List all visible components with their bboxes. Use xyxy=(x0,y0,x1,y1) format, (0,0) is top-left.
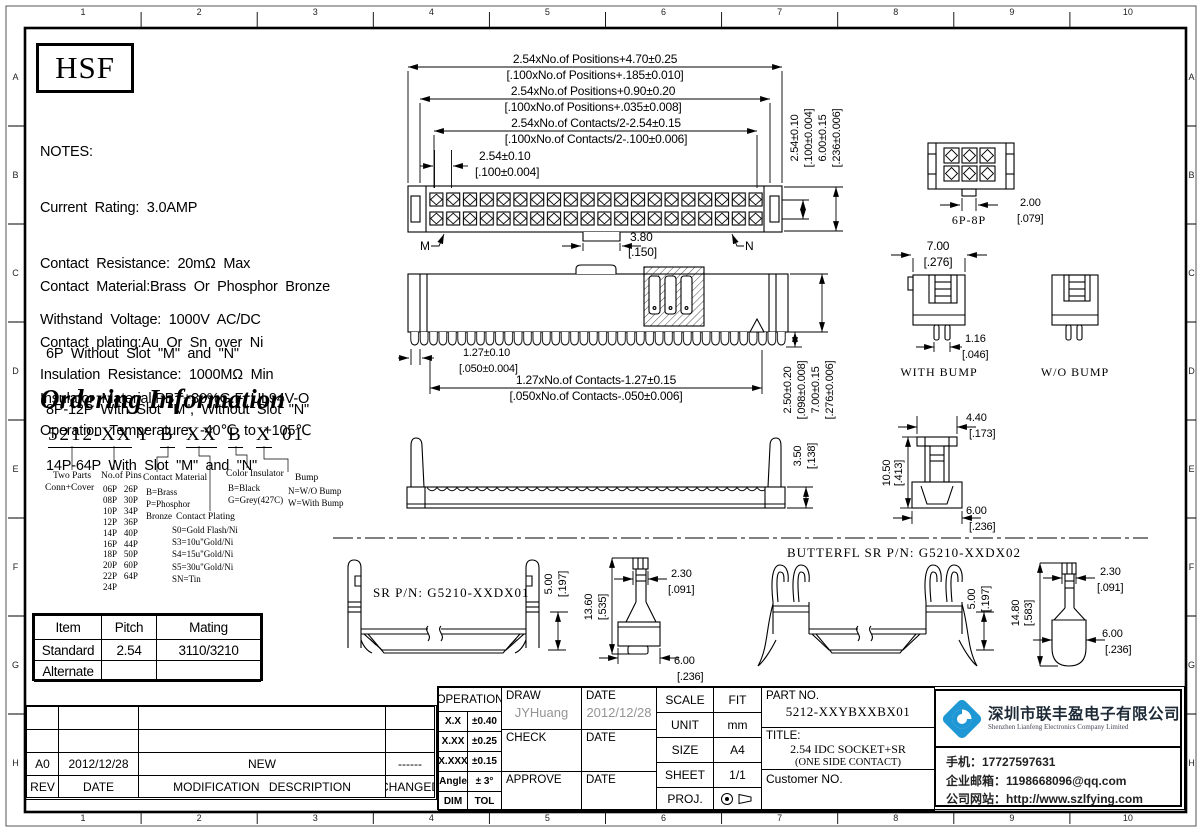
note-line: 6P Without Slot "M" and "N" xyxy=(46,345,309,364)
mating-table: Item Pitch Mating Standard 2.54 3110/321… xyxy=(32,613,263,681)
ruler-number: 3 xyxy=(257,7,373,17)
size-label: SIZE xyxy=(656,737,714,763)
ruler-number: 2 xyxy=(141,7,257,17)
slot-n-label: N xyxy=(745,239,753,253)
unit-label: UNIT xyxy=(656,712,714,738)
svg-text:2.54±0.10: 2.54±0.10 xyxy=(479,149,531,163)
rev-empty xyxy=(26,729,59,753)
tol-dim: DIM xyxy=(438,791,468,811)
title-block: OPERATION X.X ±0.40 X.XX ±0.25 X.XXX ±0.… xyxy=(437,686,1185,810)
code-bump: X xyxy=(256,424,272,448)
ruler-letter: C xyxy=(6,224,25,322)
ruler-number: 9 xyxy=(954,7,1070,17)
company-email: 企业邮箱：1198668096@qq.com xyxy=(946,772,1170,791)
mating-header: Mating xyxy=(156,615,261,640)
ruler-letter: G xyxy=(1186,616,1197,714)
tol-val: ±0.40 xyxy=(467,711,502,732)
ruler-letter: B xyxy=(1186,126,1197,224)
check-cell: CHECK xyxy=(501,729,582,772)
ruler-number: 6 xyxy=(606,7,722,17)
svg-text:5.00: 5.00 xyxy=(966,589,978,610)
option: S4=15u"Gold/Ni xyxy=(172,548,238,560)
part-no-cell: PART NO. 5212-XXYBXXBX01 xyxy=(761,687,935,728)
pins-item: 24P xyxy=(103,582,138,593)
svg-text:[.236]: [.236] xyxy=(677,671,703,683)
wo-bump-view xyxy=(1052,275,1098,340)
rev-empty xyxy=(58,729,139,753)
code-prefix: 5212- xyxy=(48,424,102,448)
dim-text: 1.16 xyxy=(965,333,986,345)
connector-section-view xyxy=(408,265,788,347)
ruler-number: 9 xyxy=(954,813,1070,823)
company-website: 公司网站：http://www.szlfying.com xyxy=(946,790,1170,809)
dim-text: 1.27±0.10 xyxy=(463,347,510,359)
svg-text:2.54xNo.of Contacts/2-2.54±0.: 2.54xNo.of Contacts/2-2.54±0.15 xyxy=(511,116,681,130)
svg-text:[.150]: [.150] xyxy=(628,245,657,259)
option: S0=Gold Flash/Ni xyxy=(172,524,238,536)
pins-list: 06P 26P 08P 30P 10P 34P 12P 36P 14P 40P … xyxy=(103,484,138,593)
svg-text:[.100±0.004]: [.100±0.004] xyxy=(803,109,815,168)
rev-empty xyxy=(26,706,59,730)
contact-plating-options: S0=Gold Flash/Ni S3=10u"Gold/Ni S4=15u"G… xyxy=(172,524,238,585)
rev-empty xyxy=(385,706,435,730)
pins-item: 06P 26P xyxy=(103,484,138,495)
dim-text: [.236] xyxy=(969,521,995,533)
mating-cell: Standard xyxy=(34,639,102,661)
notes-title: NOTES: xyxy=(40,143,311,162)
pins-item: 16P 44P xyxy=(103,539,138,550)
view-6p-8p-label: 6P-8P xyxy=(952,213,986,227)
option: G=Grey(427C) xyxy=(228,494,283,506)
dim-text: 10.50 xyxy=(881,460,893,487)
ruler-letter: F xyxy=(6,518,25,616)
dim-text: [.138] xyxy=(806,443,818,469)
svg-text:[.100±0.004]: [.100±0.004] xyxy=(475,165,539,179)
pins-item: 20P 60P xyxy=(103,560,138,571)
hsf-logo-text: HSF xyxy=(55,50,115,86)
option: P=Phosphor xyxy=(146,498,190,510)
dim-text: [.050xNo.of Contacts-.050±0.006] xyxy=(510,389,683,403)
svg-text:[.583]: [.583] xyxy=(1023,600,1035,626)
ruler-number: 5 xyxy=(489,813,605,823)
dim-text: [.079] xyxy=(1017,213,1043,225)
company-name-en: Shenzhen Lianfeng Electronics Company Li… xyxy=(988,723,1180,731)
company-phone: 手机：17727597631 xyxy=(946,753,1170,772)
note-line: Contact Material:Brass Or Phosphor Bronz… xyxy=(40,278,330,297)
svg-text:[.197]: [.197] xyxy=(557,571,569,597)
ruler-letter: H xyxy=(1186,714,1197,812)
two-parts-desc: Conn+Cover xyxy=(45,483,94,493)
dim-text: 1.27xNo.of Contacts-1.27±0.15 xyxy=(516,373,677,387)
dim-text: 2.00 xyxy=(1020,197,1041,209)
contact-material-label: Contact Material xyxy=(143,473,207,483)
svg-text:14.80: 14.80 xyxy=(1010,600,1022,627)
dim-text: [.050±0.004] xyxy=(459,363,518,375)
ruler-number: 8 xyxy=(838,7,954,17)
svg-text:[.091]: [.091] xyxy=(668,584,694,596)
tol-dim: X.X xyxy=(438,711,468,732)
company-contact: 手机：17727597631 企业邮箱：1198668096@qq.com 公司… xyxy=(936,748,1180,814)
pins-item: 22P 64P xyxy=(103,571,138,582)
draw-name: JYHuang xyxy=(515,705,568,720)
dim-text: 6.00 xyxy=(966,505,987,517)
unit-value: mm xyxy=(713,712,762,738)
dim-text: [.046] xyxy=(962,349,988,361)
svg-text:[.535]: [.535] xyxy=(597,594,609,620)
hsf-logo: HSF xyxy=(36,43,134,93)
option: S3=10u"Gold/Ni xyxy=(172,536,238,548)
rev-empty xyxy=(138,706,386,730)
ordering-information-title: Ordering Information xyxy=(40,384,285,415)
ruler-letter: E xyxy=(6,420,25,518)
svg-text:2.50±0.20: 2.50±0.20 xyxy=(782,366,794,413)
rev-empty xyxy=(138,729,386,753)
rev-description: NEW xyxy=(138,752,386,776)
ruler-number: 8 xyxy=(838,813,954,823)
connector-top-view xyxy=(408,186,782,241)
customer-no-cell: Customer NO. xyxy=(761,769,935,811)
ruler-letter: B xyxy=(6,126,25,224)
dim-text: 7.00 xyxy=(927,239,950,253)
mating-header: Item xyxy=(34,615,102,640)
pins-item: 18P 50P xyxy=(103,549,138,560)
option: B=Brass xyxy=(146,486,190,498)
code-plating: XX xyxy=(186,424,217,448)
code-y: Y xyxy=(136,424,152,446)
revision-table: A0 2012/12/28 NEW ------ REV DATE MODIFI… xyxy=(25,705,437,800)
projection-symbol xyxy=(713,787,762,811)
slot-m-label: M xyxy=(420,239,430,253)
bump-options: N=W/O Bump W=With Bump xyxy=(288,486,343,509)
draw-label: DRAW xyxy=(506,690,541,702)
svg-text:2.30: 2.30 xyxy=(1100,566,1121,578)
dim-text: 2.50±0.20 [.098±0.008] 7.00±0.15 [.276±0… xyxy=(782,361,836,420)
ruler-number: 7 xyxy=(722,7,838,17)
code-suffix: 01 xyxy=(282,424,305,446)
company-header: 深圳市联丰盈电子有限公司 Shenzhen Lianfeng Electroni… xyxy=(936,691,1180,748)
draw-date-cell: DATE 2012/12/28 xyxy=(581,687,657,730)
option: SN=Tin xyxy=(172,573,238,585)
rev-empty xyxy=(385,729,435,753)
contact-plating-label: Contact Plating xyxy=(176,512,235,522)
option: N=W/O Bump xyxy=(288,486,343,498)
size-value: A4 xyxy=(713,737,762,763)
pins-item: 08P 30P xyxy=(103,495,138,506)
part-no-label: PART NO. xyxy=(766,690,819,702)
tol-dim: X.XX xyxy=(438,731,468,752)
tol-val: ± 3° xyxy=(467,771,502,792)
company-logo-icon xyxy=(940,697,984,741)
mating-cell: 2.54 xyxy=(101,639,157,661)
pins-label: No.of Pins xyxy=(101,471,142,481)
svg-text:2.54xNo.of Positions+4.70±0.2: 2.54xNo.of Positions+4.70±0.25 xyxy=(513,52,678,66)
mating-cell: Alternate xyxy=(34,660,102,682)
svg-text:[.236±0.006]: [.236±0.006] xyxy=(831,109,843,168)
svg-text:13.60: 13.60 xyxy=(583,594,595,621)
dim-text: 4.40 xyxy=(966,412,987,424)
option: W=With Bump xyxy=(288,498,343,510)
two-parts-label: Two Parts xyxy=(53,471,91,481)
svg-text:6.00±0.15: 6.00±0.15 xyxy=(817,114,829,161)
ruler-number: 4 xyxy=(373,813,489,823)
ruler-letter: A xyxy=(1186,28,1197,126)
ruler-letter: E xyxy=(1186,420,1197,518)
ruler-letter: A xyxy=(6,28,25,126)
rev-header: REV xyxy=(26,775,59,798)
sr1-part-number: SR P/N: G5210-XXDX01 xyxy=(373,585,530,600)
pins-item: 10P 34P xyxy=(103,506,138,517)
draw-cell: DRAW JYHuang xyxy=(501,687,582,730)
drawing-subtitle: (ONE SIDE CONTACT) xyxy=(795,757,901,768)
color-insulator-label: Color Insulator xyxy=(226,469,284,479)
part-number: 5212-XXYBXXBX01 xyxy=(786,704,911,720)
dim-text: [.413] xyxy=(893,460,905,486)
rev-header: MODIFICATION DESCRIPTION xyxy=(138,775,386,798)
title-label: TITLE: xyxy=(766,730,801,742)
dim-text: [.173] xyxy=(969,428,995,440)
svg-text:[.236]: [.236] xyxy=(1105,644,1131,656)
sheet-value: 1/1 xyxy=(713,762,762,788)
option: S5=30u"Gold/Ni xyxy=(172,561,238,573)
ruler-number: 4 xyxy=(373,7,489,17)
approve-cell: APPROVE xyxy=(501,771,582,811)
svg-text:[.098±0.008]: [.098±0.008] xyxy=(796,361,808,420)
note-line: Current Rating: 3.0AMP xyxy=(40,199,311,218)
svg-text:[.100xNo.of Contacts/2-.100±0: [.100xNo.of Contacts/2-.100±0.006] xyxy=(505,132,688,146)
svg-text:6.00: 6.00 xyxy=(674,655,695,667)
ruler-number: 5 xyxy=(489,7,605,17)
tol-val: ±0.25 xyxy=(467,731,502,752)
rev-date: 2012/12/28 xyxy=(58,752,139,776)
sr-single-contact xyxy=(618,558,660,654)
ruler-letter: H xyxy=(6,714,25,812)
ruler-number: 10 xyxy=(1070,813,1186,823)
svg-text:[.100xNo.of Positions+.035±0.: [.100xNo.of Positions+.035±0.008] xyxy=(504,100,681,114)
ruler-letter: D xyxy=(6,322,25,420)
draw-date: 2012/12/28 xyxy=(586,705,651,720)
ruler-number: 1 xyxy=(25,813,141,823)
company-block: 深圳市联丰盈电子有限公司 Shenzhen Lianfeng Electroni… xyxy=(934,689,1182,807)
code-material: B xyxy=(160,424,175,448)
mating-cell xyxy=(101,660,157,682)
ruler-letter: C xyxy=(1186,224,1197,322)
svg-text:2.54xNo.of Positions+0.90±0.2: 2.54xNo.of Positions+0.90±0.20 xyxy=(511,84,676,98)
mating-cell xyxy=(156,660,261,682)
ruler-number: 3 xyxy=(257,813,373,823)
rev-header: CHANGED xyxy=(385,775,435,798)
butterfly-sr-view xyxy=(758,565,977,666)
color-insulator-options: B=Black G=Grey(427C) xyxy=(228,482,283,506)
operation-header: OPERATION xyxy=(438,687,502,712)
bump-label: Bump xyxy=(295,473,318,483)
svg-text:[.197]: [.197] xyxy=(980,586,992,612)
cover-bottom-view xyxy=(407,438,813,508)
pins-item: 14P 40P xyxy=(103,528,138,539)
ruler-letter: F xyxy=(1186,518,1197,616)
svg-text:3.80: 3.80 xyxy=(630,230,653,244)
scale-label: SCALE xyxy=(656,687,714,713)
proj-label: PROJ. xyxy=(656,787,714,811)
dim-text: [.276] xyxy=(924,255,953,269)
rev-header: DATE xyxy=(58,775,139,798)
tol-dim: X.XXX xyxy=(438,751,468,772)
sr2-part-number: BUTTERFL SR P/N: G5210-XXDX02 xyxy=(787,545,1021,560)
svg-text:[.091]: [.091] xyxy=(1097,582,1123,594)
mating-header: Pitch xyxy=(101,615,157,640)
tol-dim: Angle xyxy=(438,771,468,792)
svg-text:2.54±0.10: 2.54±0.10 xyxy=(789,114,801,161)
svg-text:6.00: 6.00 xyxy=(1102,628,1123,640)
title-cell: TITLE: 2.54 IDC SOCKET+SR (ONE SIDE CONT… xyxy=(761,727,935,770)
svg-text:5.00: 5.00 xyxy=(543,574,555,595)
ruler-number: 7 xyxy=(722,813,838,823)
pins-item: 12P 36P xyxy=(103,517,138,528)
code-color: B xyxy=(228,424,243,448)
svg-text:7.00±0.15: 7.00±0.15 xyxy=(810,366,822,413)
ruler-letter: D xyxy=(1186,322,1197,420)
with-bump-label: WITH BUMP xyxy=(900,365,977,379)
svg-text:[.100xNo.of Positions+.185±0.: [.100xNo.of Positions+.185±0.010] xyxy=(506,68,683,82)
sr-strip-view xyxy=(348,560,539,653)
scale-value: FIT xyxy=(713,687,762,713)
svg-text:[.276±0.006]: [.276±0.006] xyxy=(824,361,836,420)
check-date-cell: DATE xyxy=(581,729,657,772)
date-label: DATE xyxy=(586,690,616,702)
svg-text:2.30: 2.30 xyxy=(671,568,692,580)
ruler-letter: G xyxy=(6,616,25,714)
wo-bump-label: W/O BUMP xyxy=(1041,365,1109,379)
rev-value: A0 xyxy=(26,752,59,776)
third-angle-projection-icon xyxy=(718,790,758,808)
mating-cell: 3110/3210 xyxy=(156,639,261,661)
code-pins: XX xyxy=(101,424,132,448)
drawing-title: 2.54 IDC SOCKET+SR xyxy=(790,742,906,757)
rev-empty xyxy=(58,706,139,730)
drawing-sheet: 2.54xNo.of Positions+4.70±0.25 [.100xNo.… xyxy=(0,0,1200,832)
approve-date-cell: DATE xyxy=(581,771,657,811)
rev-changed: ------ xyxy=(385,752,435,776)
sheet-label: SHEET xyxy=(656,762,714,788)
tol-val: ±0.15 xyxy=(467,751,502,772)
tol-val: TOL xyxy=(467,791,502,811)
view-6p-8p xyxy=(928,143,1014,211)
ruler-number: 1 xyxy=(25,7,141,17)
dim-text: 5.00 [.197] 14.80 [.583] 2.30 [.091] 6.0… xyxy=(966,566,1131,656)
dim-text: 3.50 xyxy=(792,446,804,467)
ruler-number: 6 xyxy=(606,813,722,823)
option: B=Black xyxy=(228,482,283,494)
company-name-cn: 深圳市联丰盈电子有限公司 xyxy=(988,706,1180,723)
ruler-number: 10 xyxy=(1070,7,1186,17)
ruler-number: 2 xyxy=(141,813,257,823)
